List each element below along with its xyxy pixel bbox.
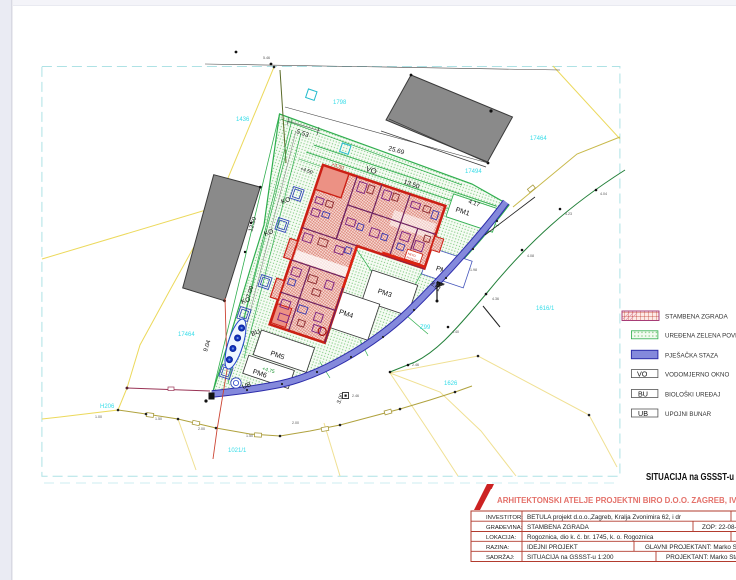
svg-text:4.08: 4.08 xyxy=(527,254,534,258)
svg-text:UPOJNI BUNAR: UPOJNI BUNAR xyxy=(665,411,712,418)
svg-text:SITUACIJA na GSSST-u 1:200: SITUACIJA na GSSST-u 1:200 xyxy=(527,554,614,561)
svg-text:4.04: 4.04 xyxy=(600,192,607,196)
svg-text:H206: H206 xyxy=(100,404,115,410)
svg-text:2.00: 2.00 xyxy=(292,421,299,425)
svg-text:STAMBENA ZGRADA: STAMBENA ZGRADA xyxy=(527,524,590,531)
svg-text:BETULA projekt d.o.o.,Zagreb,: BETULA projekt d.o.o.,Zagreb, Kralja Zvo… xyxy=(527,514,681,521)
svg-text:ARHITEKTONSKI ATELJE PROJEKTNI: ARHITEKTONSKI ATELJE PROJEKTNI BIRO D.O.… xyxy=(497,496,736,505)
svg-text:1626: 1626 xyxy=(444,381,458,387)
svg-text:1.00: 1.00 xyxy=(95,415,102,419)
svg-text:2.46: 2.46 xyxy=(352,394,359,398)
svg-text:VO: VO xyxy=(637,370,648,379)
svg-text:4.23: 4.23 xyxy=(565,212,572,216)
svg-text:SADRŽAJ:: SADRŽAJ: xyxy=(486,553,515,561)
svg-text:Z99: Z99 xyxy=(420,325,431,331)
svg-text:LOKACIJA:: LOKACIJA: xyxy=(486,535,516,541)
svg-text:BU: BU xyxy=(638,390,648,399)
svg-text:UREĐENA ZELENA POVRŠINA: UREĐENA ZELENA POVRŠINA xyxy=(665,333,736,340)
svg-text:1021/1: 1021/1 xyxy=(228,448,247,454)
svg-text:1.50: 1.50 xyxy=(246,434,253,438)
svg-text:1.50: 1.50 xyxy=(155,417,162,421)
svg-text:1.98: 1.98 xyxy=(470,268,477,272)
svg-text:BIOLOŠKI UREĐAJ: BIOLOŠKI UREĐAJ xyxy=(665,392,720,399)
svg-text:VODOMJERNO OKNO: VODOMJERNO OKNO xyxy=(665,372,729,379)
svg-text:2.00: 2.00 xyxy=(198,427,205,431)
svg-text:Rogoznica, dio k. č. br. 1745: Rogoznica, dio k. č. br. 1745, k. o. Rog… xyxy=(527,534,654,541)
svg-text:PJEŠAČKA STAZA: PJEŠAČKA STAZA xyxy=(665,353,719,360)
svg-text:RAZINA:: RAZINA: xyxy=(486,545,510,551)
svg-text:17494: 17494 xyxy=(465,169,482,175)
svg-text:UB: UB xyxy=(638,409,648,418)
svg-text:1436: 1436 xyxy=(236,117,250,123)
svg-text:GLAVNI PROJEKTANT: Marko Stan: GLAVNI PROJEKTANT: Marko Stanić xyxy=(645,544,736,551)
svg-text:IDEJNI PROJEKT: IDEJNI PROJEKT xyxy=(527,544,578,551)
svg-text:1616/1: 1616/1 xyxy=(536,306,555,312)
svg-text:GRAĐEVINA:: GRAĐEVINA: xyxy=(486,525,523,531)
svg-text:1798: 1798 xyxy=(333,100,347,106)
svg-text:INVESTITOR:: INVESTITOR: xyxy=(486,515,523,521)
svg-text:ZOP: 22-08-05: ZOP: 22-08-05 xyxy=(702,524,736,531)
svg-text:2.80: 2.80 xyxy=(437,283,444,287)
svg-text:4.36: 4.36 xyxy=(492,297,499,301)
svg-text:SITUACIJA na GSSST-u: SITUACIJA na GSSST-u xyxy=(646,472,734,483)
svg-text:17464: 17464 xyxy=(530,136,547,142)
svg-text:5.46: 5.46 xyxy=(263,56,270,60)
svg-text:STAMBENA ZGRADA: STAMBENA ZGRADA xyxy=(665,314,728,321)
svg-text:PROJEKTANT: Marko Stanić: PROJEKTANT: Marko Stanić xyxy=(666,554,736,561)
svg-text:17464: 17464 xyxy=(178,332,195,338)
svg-text:2.46: 2.46 xyxy=(412,363,419,367)
svg-text:4.40: 4.40 xyxy=(452,330,459,334)
